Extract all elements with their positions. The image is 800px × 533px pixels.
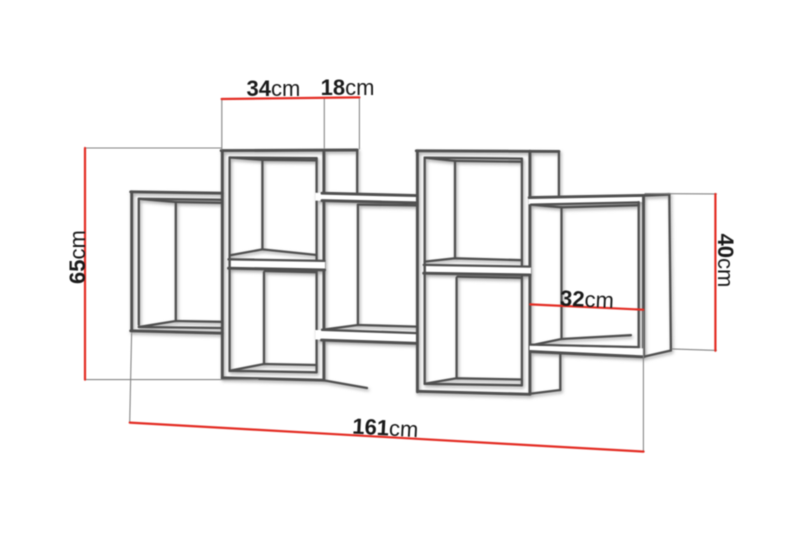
- svg-text:34cm: 34cm: [247, 76, 301, 101]
- svg-text:161cm: 161cm: [352, 414, 419, 443]
- svg-text:40cm: 40cm: [713, 234, 738, 288]
- svg-text:18cm: 18cm: [321, 75, 375, 100]
- svg-text:32cm: 32cm: [560, 286, 615, 314]
- svg-text:65cm: 65cm: [65, 230, 90, 284]
